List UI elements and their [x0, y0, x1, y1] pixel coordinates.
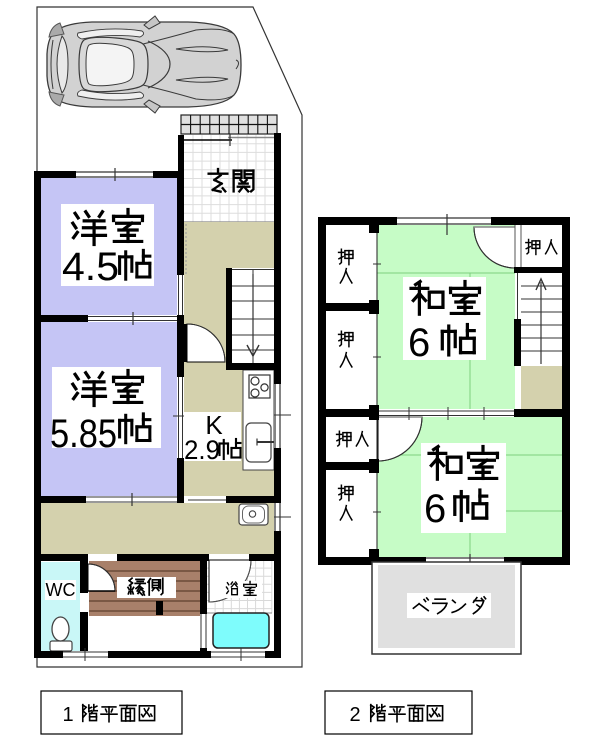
svg-text:2: 2 [349, 704, 360, 726]
svg-text:WC: WC [46, 580, 76, 600]
svg-text:1: 1 [62, 704, 73, 726]
svg-text:2.9: 2.9 [184, 435, 220, 465]
svg-text:6: 6 [408, 321, 430, 365]
svg-text:5.85: 5.85 [50, 412, 117, 456]
svg-text:6: 6 [424, 487, 446, 531]
svg-text:4.5: 4.5 [62, 245, 119, 289]
